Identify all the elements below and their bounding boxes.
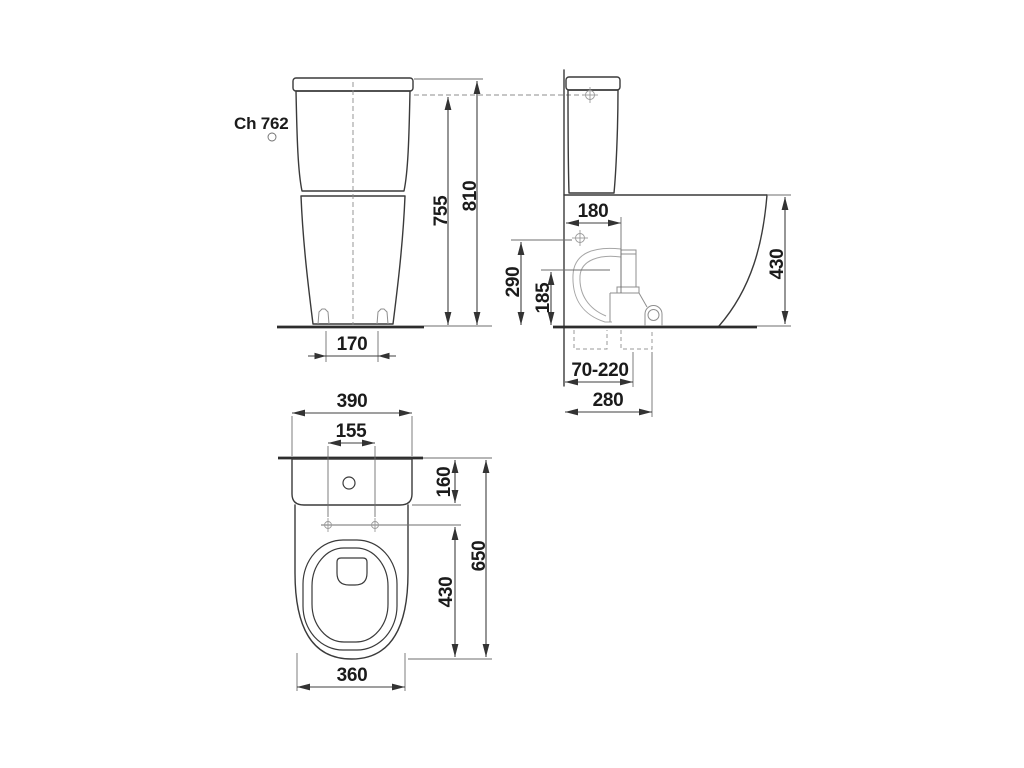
dim-top-tank-depth-160: 160 <box>412 460 461 505</box>
dim-label-810: 810 <box>460 181 481 212</box>
floor-outlet-option-left <box>574 330 607 349</box>
dim-top-hinge-spacing-155: 155 <box>328 421 375 517</box>
dim-side-outlet-height-185: 185 <box>533 270 610 325</box>
floor-outlet-option-right <box>621 330 652 349</box>
top-view: 390 155 160 650 430 <box>278 391 492 691</box>
dim-label-280: 280 <box>593 390 624 411</box>
front-right-foot-fixing <box>377 309 388 324</box>
dim-label-360: 360 <box>337 665 368 686</box>
dim-label-180: 180 <box>578 201 609 222</box>
flush-pipe-flange <box>617 287 639 293</box>
dim-front-height-810: 810 <box>460 81 481 325</box>
dim-label-290: 290 <box>503 267 524 298</box>
dim-label-side-430: 430 <box>767 249 788 280</box>
dim-label-160: 160 <box>434 467 455 498</box>
dim-label-650: 650 <box>469 541 490 572</box>
dim-label-755: 755 <box>431 195 452 227</box>
toilet-dimension-drawing: Ch 762 755 810 <box>0 0 1024 768</box>
front-view: Ch 762 755 810 <box>234 78 584 362</box>
dim-top-seat-length-430: 430 <box>436 527 457 657</box>
technical-drawing-page: Ch 762 755 810 <box>0 0 1024 768</box>
side-view: 180 290 185 430 70-220 <box>503 70 791 417</box>
dim-label-185: 185 <box>533 282 554 314</box>
dim-label-170: 170 <box>337 334 368 355</box>
top-sump-outline <box>337 558 367 585</box>
dim-label-390: 390 <box>337 391 368 412</box>
dim-front-feet-170: 170 <box>308 331 396 362</box>
top-cistern <box>292 459 412 505</box>
dim-side-bowl-height-430: 430 <box>757 195 791 326</box>
product-code-marker-circle <box>268 133 276 141</box>
dim-label-top-430: 430 <box>436 577 457 608</box>
flush-pipe <box>621 250 636 287</box>
front-left-foot-fixing <box>318 309 329 324</box>
side-cistern-lid <box>566 77 620 90</box>
dim-front-height-755: 755 <box>431 97 452 325</box>
top-seat-inner-rim <box>312 548 388 642</box>
dim-label-70-220: 70-220 <box>571 360 628 381</box>
dim-side-outlet-range-70-220: 70-220 <box>565 352 633 387</box>
side-cistern-body <box>568 90 618 193</box>
dim-side-offset-180: 180 <box>566 201 621 293</box>
flush-button <box>343 477 355 489</box>
top-seat-outer-rim <box>303 540 397 650</box>
side-supply-drill-target <box>572 230 588 246</box>
side-trap-detail <box>573 248 662 349</box>
product-code-label: Ch 762 <box>234 114 289 133</box>
side-bowl-profile <box>719 195 767 326</box>
dim-label-155: 155 <box>336 421 368 442</box>
